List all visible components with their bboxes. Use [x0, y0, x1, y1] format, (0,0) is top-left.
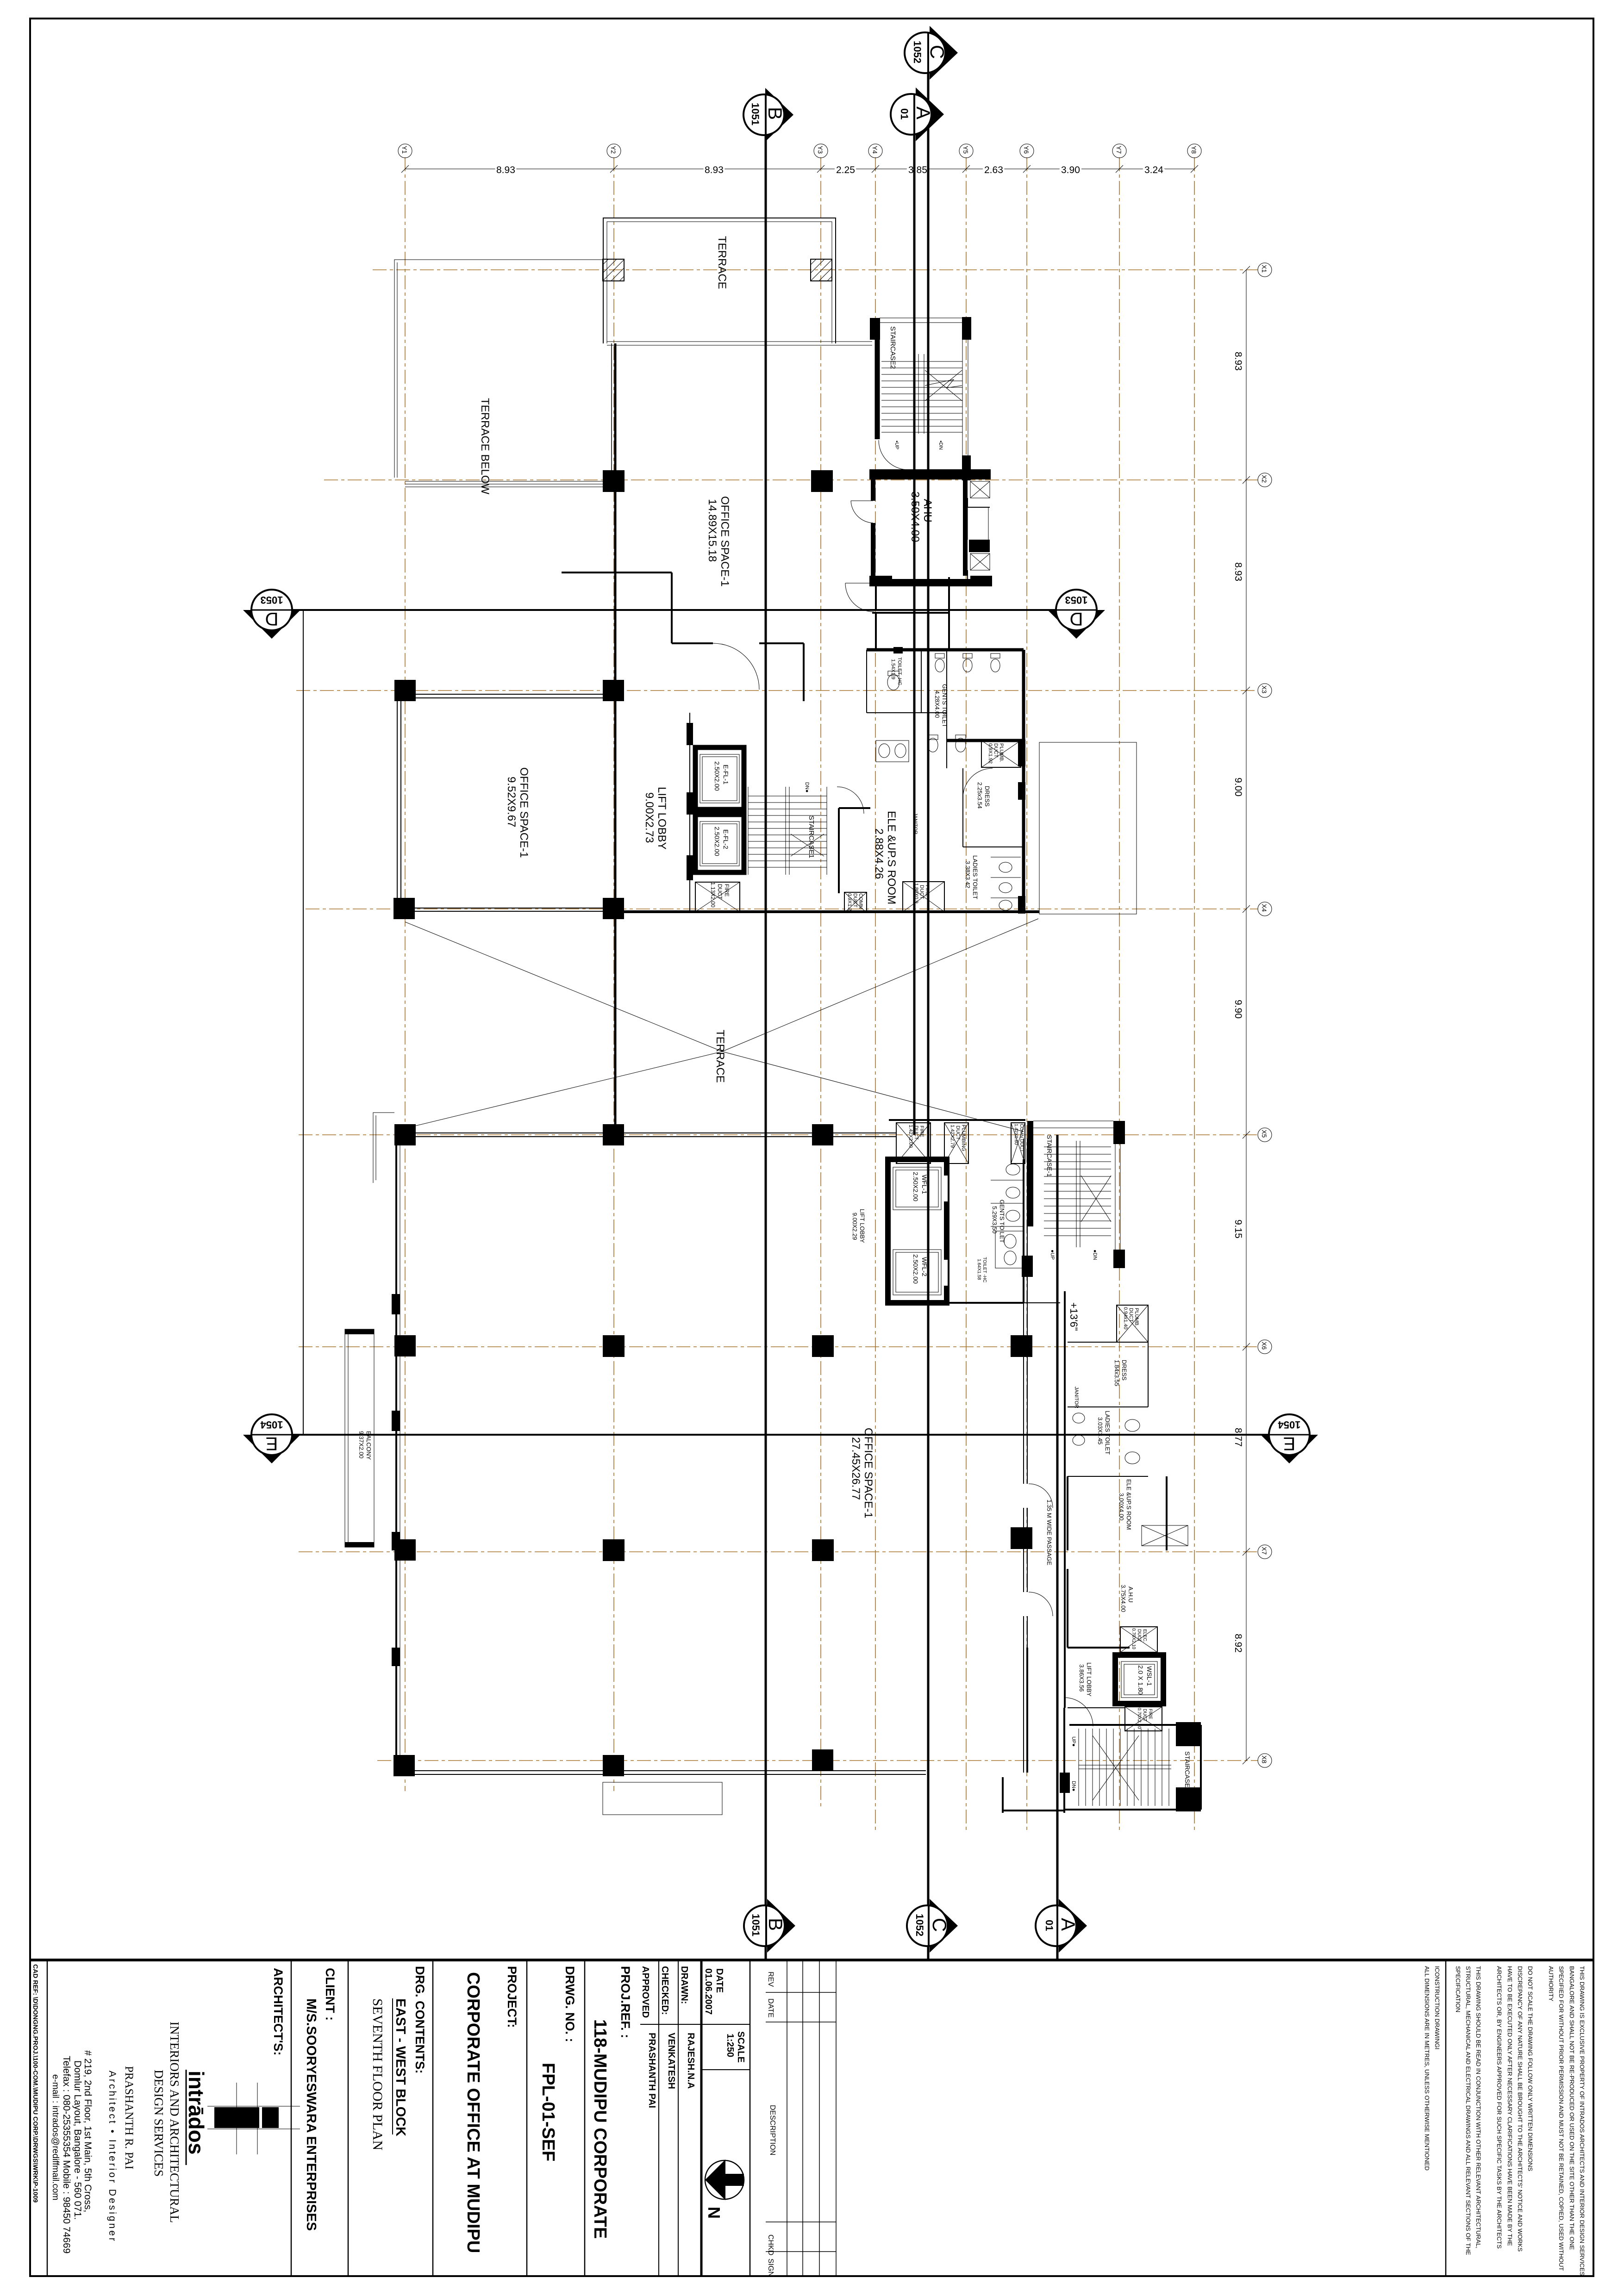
svg-text:1.42X2.79: 1.42X2.79	[949, 1125, 955, 1148]
svg-text:SIGN: SIGN	[767, 2259, 775, 2277]
svg-text:14.89X15.18: 14.89X15.18	[706, 499, 718, 562]
svg-text:UP●: UP●	[1071, 1736, 1076, 1747]
svg-text:CHKD: CHKD	[767, 2234, 775, 2255]
svg-text:ARCHITECTS OR, BY ENGINEERS AP: ARCHITECTS OR, BY ENGINEERS APPROVED FOR…	[1496, 1966, 1503, 2249]
svg-text:1.80X0.9: 1.80X0.9	[913, 883, 919, 903]
svg-text:N: N	[705, 2207, 724, 2219]
svg-text:8.92: 8.92	[1233, 1634, 1243, 1653]
svg-text:X5: X5	[1261, 1130, 1268, 1138]
svg-text:8.93: 8.93	[496, 165, 515, 175]
svg-text:STAIRCASE2: STAIRCASE2	[1184, 1751, 1191, 1791]
svg-text:DUCT: DUCT	[852, 893, 858, 908]
svg-text:1052: 1052	[912, 41, 923, 63]
svg-text:X7: X7	[1261, 1547, 1268, 1555]
svg-text:Y5: Y5	[962, 146, 969, 154]
svg-text:0.94x1.40: 0.94x1.40	[1123, 1307, 1128, 1329]
svg-text:9.90: 9.90	[1233, 1000, 1243, 1019]
svg-text:ARCHITECT'S:: ARCHITECT'S:	[271, 1968, 285, 2055]
svg-text:PLUMB.: PLUMB.	[1134, 1308, 1139, 1327]
svg-text:JANITOR: JANITOR	[1074, 1387, 1079, 1408]
svg-text:OFFICE SPACE-1: OFFICE SPACE-1	[862, 1428, 874, 1518]
svg-text:# 219, 2nd Floor, 1st Main, 5t: # 219, 2nd Floor, 1st Main, 5th Cross,	[82, 2050, 93, 2212]
svg-text:BALCONY: BALCONY	[365, 1431, 372, 1460]
svg-text:FPL-01-SEF: FPL-01-SEF	[538, 2063, 558, 2161]
svg-text:DISCREPANCY OF ANY NATURE SHAL: DISCREPANCY OF ANY NATURE SHALL BE BROUG…	[1517, 1966, 1524, 2252]
svg-text:9.52X9.67: 9.52X9.67	[505, 777, 518, 827]
svg-text:2.88X4.26: 2.88X4.26	[873, 828, 885, 879]
svg-text:1.84x3.55: 1.84x3.55	[1113, 1360, 1120, 1386]
svg-text:+13'6": +13'6"	[1068, 1302, 1080, 1331]
svg-text:APPROVED: APPROVED	[640, 1966, 650, 2018]
svg-text:CLIENT :: CLIENT :	[323, 1968, 337, 2021]
svg-text:DUCT: DUCT	[955, 1126, 961, 1140]
svg-text:WFL-2: WFL-2	[921, 1257, 928, 1276]
svg-text:8.93: 8.93	[705, 165, 724, 175]
svg-text:PLUMBING: PLUMBING	[961, 1125, 966, 1151]
svg-text:2.63: 2.63	[984, 165, 1003, 175]
svg-text:DUCT: DUCT	[919, 885, 924, 899]
svg-text:STAIRCASE1: STAIRCASE1	[807, 815, 815, 858]
svg-text:SCALE: SCALE	[736, 2031, 746, 2063]
svg-text:Architect • Interior Designer: Architect • Interior Designer	[107, 2071, 118, 2243]
svg-text:8.77: 8.77	[1233, 1428, 1243, 1447]
svg-text:FIRE: FIRE	[919, 1126, 924, 1137]
svg-text:DRESS: DRESS	[1121, 1360, 1128, 1381]
svg-text:C: C	[926, 45, 948, 59]
svg-text:BANGALORE AND SHALL NOT BE RE-: BANGALORE AND SHALL NOT BE RE-PRODUCED O…	[1568, 1966, 1575, 2250]
svg-text:A: A	[1057, 1918, 1079, 1931]
svg-text:1.54X1.9: 1.54X1.9	[890, 659, 896, 679]
svg-text:LIFT LOBBY: LIFT LOBBY	[1086, 1662, 1093, 1697]
svg-text:C: C	[929, 1918, 950, 1932]
svg-text:B: B	[765, 1918, 787, 1931]
svg-text:LADIES TOILET: LADIES TOILET	[1104, 1411, 1111, 1455]
svg-text:ICONSTRUCTION DRAWINGI: ICONSTRUCTION DRAWINGI	[1434, 1966, 1441, 2049]
svg-text:E: E	[266, 1433, 278, 1454]
svg-text:0.9X1.2: 0.9X1.2	[847, 893, 852, 911]
svg-text:FIRE: FIRE	[924, 885, 930, 896]
svg-text:0.9X1.92: 0.9X1.92	[987, 743, 993, 764]
svg-text:AHU: AHU	[921, 499, 934, 523]
svg-text:TOILET -HC: TOILET -HC	[897, 657, 902, 685]
svg-text:Y1: Y1	[401, 146, 408, 154]
svg-text:118-MUDIPU CORPORATE: 118-MUDIPU CORPORATE	[590, 2019, 610, 2239]
svg-text:2.25: 2.25	[836, 165, 855, 175]
svg-text:●UP: ●UP	[1049, 1250, 1055, 1260]
svg-text:EAST - WEST BLOCK: EAST - WEST BLOCK	[393, 1998, 408, 2136]
svg-text:3.85: 3.85	[908, 165, 927, 175]
svg-text:Y8: Y8	[1190, 146, 1198, 154]
svg-text:3.38X3.42: 3.38X3.42	[964, 861, 971, 888]
svg-text:DN●: DN●	[804, 782, 810, 793]
svg-text:FIRE: FIRE	[1148, 1709, 1153, 1719]
svg-text:ALL DIMENSIONS ARE IN METRES,: ALL DIMENSIONS ARE IN METRES, UNLESS OTH…	[1424, 1966, 1430, 2171]
svg-text:SPECIFIED FOR WITHOUT PRIOR PE: SPECIFIED FOR WITHOUT PRIOR PERMISSION A…	[1558, 1966, 1565, 2271]
svg-text:CORPORATE OFFICE AT MUDIPU: CORPORATE OFFICE AT MUDIPU	[463, 1972, 483, 2253]
svg-text:8.93: 8.93	[1233, 352, 1243, 371]
svg-text:LADIES TOILET: LADIES TOILET	[972, 855, 979, 899]
svg-text:VENKATESH: VENKATESH	[666, 2033, 676, 2089]
svg-text:ELE &UP.S ROOM: ELE &UP.S ROOM	[885, 811, 898, 904]
svg-text:DATE: DATE	[767, 1998, 775, 2017]
svg-text:2.50X2.00: 2.50X2.00	[713, 827, 721, 856]
svg-text:DUCT: DUCT	[1142, 1709, 1147, 1722]
svg-text:1.64X1.58: 1.64X1.58	[976, 1259, 981, 1280]
svg-text:2.25x3.54: 2.25x3.54	[976, 782, 983, 809]
svg-text:Telefax : 080-25355354 Mobil: Telefax : 080-25355354 Mobile : 98450 74…	[61, 2056, 72, 2253]
svg-text:FIRE: FIRE	[724, 884, 730, 896]
svg-text:SPECIFICATION: SPECIFICATION	[1455, 1966, 1462, 2012]
svg-text:AUTHORITY: AUTHORITY	[1548, 1966, 1555, 2001]
svg-text:4.28X4.00: 4.28X4.00	[934, 691, 941, 718]
svg-text:9.00X2.29: 9.00X2.29	[851, 1213, 858, 1240]
svg-text:Y2: Y2	[610, 146, 617, 154]
svg-text:STAIRCASE-1: STAIRCASE-1	[1046, 1135, 1053, 1177]
svg-text:X1: X1	[1261, 265, 1268, 273]
svg-text:1.42X0.60: 1.42X0.60	[1013, 1124, 1018, 1145]
svg-text:Y6: Y6	[1023, 146, 1030, 154]
svg-text:2.50X2.00: 2.50X2.00	[912, 1254, 919, 1284]
svg-text:27.45X26.77: 27.45X26.77	[849, 1437, 862, 1500]
svg-text:TERRACE BELOW: TERRACE BELOW	[479, 398, 491, 494]
svg-text:0.70X2.10: 0.70X2.10	[1137, 1708, 1142, 1729]
svg-text:STRUCTURAL, MECHANICAL AND ELE: STRUCTURAL, MECHANICAL AND ELECTRICAL DR…	[1465, 1966, 1472, 2255]
svg-text:DO NOT SCALE THE DRAWING FOLL: DO NOT SCALE THE DRAWING FOLLOW ONLY WRI…	[1527, 1966, 1534, 2171]
svg-text:WSL-1: WSL-1	[1146, 1666, 1153, 1686]
svg-text:M/S.SOORYESWARA ENTERPRISES: M/S.SOORYESWARA ENTERPRISES	[304, 1998, 319, 2231]
svg-text:E-FL-1: E-FL-1	[722, 765, 730, 784]
svg-text:1.35 M WIDE PASSAGE: 1.35 M WIDE PASSAGE	[1046, 1500, 1053, 1565]
svg-text:D: D	[1070, 609, 1083, 629]
svg-text:1051: 1051	[750, 103, 761, 125]
svg-text:X2: X2	[1261, 475, 1268, 483]
svg-text:3.00X4.00: 3.00X4.00	[1118, 1493, 1125, 1520]
svg-text:DESIGN SERVICES: DESIGN SERVICES	[152, 2070, 166, 2177]
svg-text:JANITOR: JANITOR	[912, 813, 918, 834]
svg-text:X8: X8	[1261, 1755, 1268, 1763]
svg-text:X3: X3	[1261, 685, 1268, 693]
svg-text:9.00X2.73: 9.00X2.73	[643, 792, 656, 843]
svg-text:CHECKED:: CHECKED:	[660, 1966, 670, 2015]
svg-text:01: 01	[899, 108, 910, 119]
svg-text:3.90: 3.90	[1061, 165, 1080, 175]
svg-text:B: B	[764, 107, 786, 120]
svg-text:1053: 1053	[1065, 594, 1088, 606]
svg-text:1.13X2.00: 1.13X2.00	[710, 882, 716, 908]
svg-text:DRAWN:: DRAWN:	[679, 1966, 689, 2004]
svg-text:COMN: COMN	[858, 893, 863, 909]
svg-text:TERRACE: TERRACE	[714, 1030, 726, 1083]
svg-text:LIFT LOBBY: LIFT LOBBY	[656, 787, 668, 850]
svg-text:CAD REF: \D\DONGNG.PROJ.\100-: CAD REF: \D\DONGNG.PROJ.\100-COM.\MUDIPU…	[32, 1964, 39, 2203]
svg-text:1053: 1053	[261, 594, 283, 606]
svg-text:3.24: 3.24	[1144, 165, 1163, 175]
svg-text:intrādos: intrādos	[184, 2071, 208, 2154]
svg-text:TERRACE: TERRACE	[716, 236, 728, 289]
svg-text:3.50X4.00: 3.50X4.00	[909, 492, 921, 542]
svg-text:D: D	[265, 609, 279, 629]
svg-text:LIFT LOBBY: LIFT LOBBY	[859, 1209, 866, 1243]
svg-text:HAVE TO BE EXECUTED ONLY AFTER: HAVE TO BE EXECUTED ONLY AFTER NECESSARY…	[1506, 1966, 1513, 2246]
svg-text:8.93: 8.93	[1233, 562, 1243, 581]
svg-text:PRASHANTH R. PAI: PRASHANTH R. PAI	[123, 2066, 135, 2169]
svg-text:Y3: Y3	[817, 146, 824, 154]
svg-text:1054: 1054	[1278, 1419, 1301, 1431]
svg-text:Y7: Y7	[1115, 146, 1123, 154]
svg-text:INTERIORS AND ARCHITECTURAL: INTERIORS AND ARCHITECTURAL	[168, 2022, 181, 2223]
svg-text:REV: REV	[767, 1972, 775, 1987]
svg-text:DN●: DN●	[1071, 1781, 1076, 1792]
svg-text:1054: 1054	[260, 1419, 283, 1431]
svg-text:PRASHANTH PAI: PRASHANTH PAI	[647, 2033, 657, 2108]
svg-text:SEVENTH FLOOR PLAN: SEVENTH FLOOR PLAN	[370, 1998, 385, 2150]
svg-text:THIS DRAWING IS EXCLUSIVE PROP: THIS DRAWING IS EXCLUSIVE PROPERTY OF IN…	[1579, 1966, 1586, 2276]
svg-text:▪DN: ▪DN	[938, 441, 943, 450]
svg-text:RAJESH.N.A: RAJESH.N.A	[686, 2033, 696, 2089]
svg-text:DRWG. NO. :: DRWG. NO. :	[563, 1966, 577, 2042]
svg-text:PROJECT:: PROJECT:	[505, 1966, 519, 2028]
svg-text:PLUMB.: PLUMB.	[999, 743, 1004, 762]
svg-text:1051: 1051	[750, 1914, 762, 1936]
svg-text:Domlur Layout, Bangalore - 560: Domlur Layout, Bangalore - 560 071.	[72, 2060, 83, 2220]
svg-text:DUCT: DUCT	[1137, 1629, 1142, 1642]
svg-text:DESCRIPTION: DESCRIPTION	[768, 2105, 776, 2155]
svg-text:DUCT: DUCT	[717, 884, 723, 900]
svg-text:A.H.U: A.H.U	[1127, 1587, 1134, 1603]
svg-text:OFFICE SPACE-1: OFFICE SPACE-1	[718, 496, 731, 587]
svg-text:9.37X2.00: 9.37X2.00	[358, 1431, 365, 1458]
svg-text:9.15: 9.15	[1233, 1220, 1243, 1238]
svg-text:3.86X3.56: 3.86X3.56	[1078, 1664, 1085, 1692]
svg-text:ELEC.: ELEC.	[1142, 1629, 1147, 1643]
svg-text:TOILET -HC: TOILET -HC	[982, 1257, 987, 1282]
svg-text:DUCT: DUCT	[993, 743, 999, 758]
svg-text:STAIRCASE2: STAIRCASE2	[889, 326, 897, 369]
svg-text:WFL-1: WFL-1	[921, 1175, 928, 1194]
svg-text:01: 01	[1043, 1920, 1055, 1931]
svg-text:0.70X2.10: 0.70X2.10	[1131, 1628, 1136, 1649]
svg-text:●DN: ●DN	[1092, 1250, 1098, 1260]
svg-text:9.00: 9.00	[1233, 778, 1243, 796]
svg-text:1:250: 1:250	[725, 2034, 735, 2057]
svg-text:3.75X4.00: 3.75X4.00	[1120, 1585, 1127, 1612]
svg-text:1052: 1052	[914, 1914, 925, 1936]
svg-text:GENTS TOILET: GENTS TOILET	[999, 1200, 1006, 1243]
svg-text:DATE: DATE	[714, 1968, 725, 1993]
svg-text:1.42X2.00: 1.42X2.00	[908, 1125, 913, 1148]
svg-text:5.29X3.50: 5.29X3.50	[991, 1206, 998, 1233]
svg-text:A: A	[912, 106, 934, 119]
svg-text:3.03X3.45: 3.03X3.45	[1097, 1417, 1104, 1444]
svg-text:Y4: Y4	[871, 146, 879, 154]
svg-text:2.0 X 1.80: 2.0 X 1.80	[1137, 1665, 1144, 1695]
svg-text:X6: X6	[1261, 1342, 1268, 1350]
svg-text:01.06.2007: 01.06.2007	[703, 1968, 713, 2015]
svg-text:COMN.DUCT: COMN.DUCT	[1019, 1124, 1024, 1152]
svg-text:DUCT: DUCT	[1128, 1308, 1134, 1322]
svg-text:X4: X4	[1261, 904, 1268, 912]
svg-text:DRESS: DRESS	[984, 786, 991, 807]
svg-text:PROJ.REF. :: PROJ.REF. :	[618, 1966, 632, 2038]
svg-text:THIS DRAWING SHOULD BE READ IN: THIS DRAWING SHOULD BE READ IN CONJUNCTI…	[1475, 1966, 1482, 2248]
svg-text:GENTS TOILET: GENTS TOILET	[941, 684, 948, 727]
svg-text:ELE &UP.S ROOM: ELE &UP.S ROOM	[1125, 1479, 1132, 1530]
svg-text:▪UP: ▪UP	[894, 441, 899, 449]
svg-text:e-mail : intrados@rediffmail.c: e-mail : intrados@rediffmail.com	[50, 2074, 60, 2200]
svg-text:DRG. CONTENTS:: DRG. CONTENTS:	[413, 1966, 427, 2074]
svg-text:OFFICE SPACE-1: OFFICE SPACE-1	[518, 767, 530, 858]
svg-text:●: ●	[740, 782, 746, 785]
svg-text:2.50X2.00: 2.50X2.00	[912, 1172, 919, 1201]
svg-text:E: E	[1283, 1433, 1296, 1454]
svg-text:DUCT: DUCT	[913, 1126, 919, 1140]
svg-text:E-FL-2: E-FL-2	[722, 829, 730, 849]
svg-text:2.50X2.00: 2.50X2.00	[713, 761, 721, 791]
